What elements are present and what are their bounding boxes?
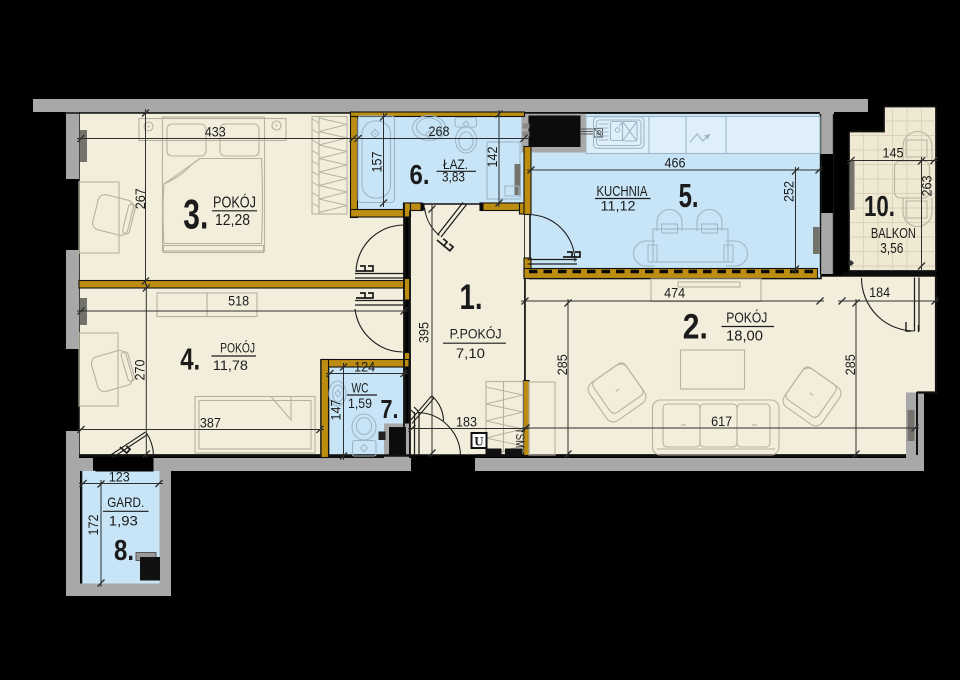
svg-text:147: 147 <box>329 400 344 421</box>
svg-text:7.: 7. <box>381 394 399 424</box>
svg-text:124: 124 <box>354 360 375 375</box>
svg-text:268: 268 <box>429 124 450 139</box>
svg-text:4.: 4. <box>180 341 200 376</box>
svg-text:11,12: 11,12 <box>601 198 636 214</box>
svg-text:POKÓJ: POKÓJ <box>220 341 255 356</box>
svg-text:11,78: 11,78 <box>213 358 248 373</box>
svg-text:183: 183 <box>456 415 477 430</box>
svg-text:123: 123 <box>109 470 130 485</box>
svg-text:1.: 1. <box>460 278 483 317</box>
svg-text:3.: 3. <box>183 191 208 238</box>
svg-text:270: 270 <box>133 360 148 381</box>
svg-text:395: 395 <box>417 322 432 343</box>
svg-text:2.: 2. <box>683 307 708 346</box>
svg-text:10.: 10. <box>864 191 895 223</box>
svg-text:3,56: 3,56 <box>880 241 903 257</box>
svg-text:267: 267 <box>133 188 148 209</box>
svg-text:18,00: 18,00 <box>726 328 763 345</box>
svg-text:184: 184 <box>869 285 890 300</box>
svg-text:BALKON: BALKON <box>871 226 916 242</box>
svg-text:12,28: 12,28 <box>215 212 250 229</box>
svg-text:263: 263 <box>920 176 935 197</box>
svg-text:WC: WC <box>352 379 369 395</box>
svg-text:8.: 8. <box>114 535 134 567</box>
svg-text:3,83: 3,83 <box>442 170 465 185</box>
svg-text:142: 142 <box>485 147 500 168</box>
svg-text:TSM: TSM <box>513 428 525 448</box>
svg-text:6.: 6. <box>410 159 430 190</box>
svg-text:252: 252 <box>782 181 797 202</box>
svg-text:1,93: 1,93 <box>109 513 138 529</box>
svg-text:285: 285 <box>555 354 570 375</box>
svg-text:U: U <box>474 434 484 449</box>
svg-text:466: 466 <box>665 156 686 171</box>
svg-text:172: 172 <box>86 515 101 536</box>
svg-text:617: 617 <box>711 414 732 429</box>
svg-text:145: 145 <box>883 146 904 161</box>
svg-text:POKÓJ: POKÓJ <box>213 195 256 212</box>
svg-text:P.POKÓJ: P.POKÓJ <box>450 327 502 342</box>
svg-text:1,59: 1,59 <box>348 395 372 411</box>
svg-text:474: 474 <box>664 286 685 301</box>
svg-text:285: 285 <box>843 354 858 375</box>
svg-text:433: 433 <box>205 125 226 140</box>
svg-text:157: 157 <box>370 152 385 173</box>
svg-text:GARD.: GARD. <box>107 494 144 510</box>
svg-text:7,10: 7,10 <box>456 346 485 361</box>
svg-text:POKÓJ: POKÓJ <box>726 310 767 327</box>
svg-text:387: 387 <box>200 416 221 431</box>
svg-text:518: 518 <box>228 294 249 309</box>
svg-text:5.: 5. <box>679 177 699 214</box>
